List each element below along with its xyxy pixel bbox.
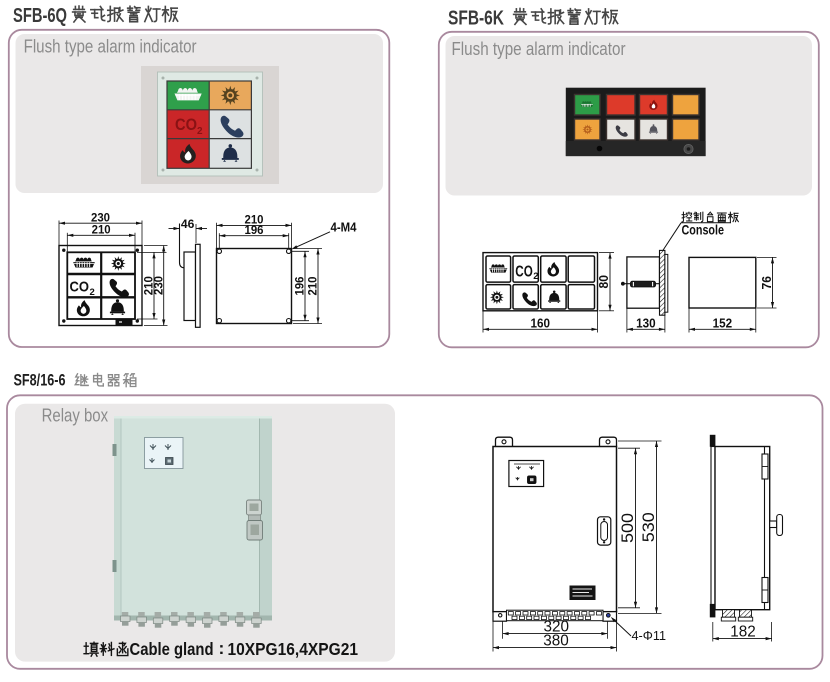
svg-text:Flush type alarm indicator: Flush type alarm indicator [452, 38, 626, 59]
svg-text:2: 2 [197, 126, 203, 137]
svg-text:SFB-6K: SFB-6K [448, 8, 504, 30]
svg-text:4-Φ11: 4-Φ11 [632, 628, 667, 643]
svg-text:182: 182 [730, 623, 756, 640]
svg-text:10XPG16,4XPG21: 10XPG16,4XPG21 [228, 639, 359, 659]
svg-text:196: 196 [293, 276, 307, 295]
svg-text:SF8/16-6: SF8/16-6 [14, 371, 66, 390]
svg-text:196: 196 [245, 223, 264, 237]
svg-text:152: 152 [713, 317, 733, 331]
svg-text:80: 80 [597, 275, 611, 289]
svg-text:230: 230 [151, 276, 165, 295]
svg-text:Console: Console [682, 222, 725, 238]
svg-text:210: 210 [92, 223, 111, 237]
svg-text:2: 2 [533, 271, 538, 282]
svg-text:130: 130 [636, 317, 656, 331]
svg-text:530: 530 [640, 512, 658, 542]
svg-text:76: 76 [760, 276, 774, 290]
svg-text:2: 2 [90, 287, 95, 298]
svg-text:4-M4: 4-M4 [331, 221, 357, 235]
svg-text:CO: CO [515, 264, 533, 281]
svg-text:210: 210 [306, 276, 320, 295]
svg-text:46: 46 [181, 217, 195, 231]
svg-text:CO: CO [70, 279, 90, 296]
svg-text:Relay box: Relay box [42, 405, 109, 426]
svg-text::: : [219, 638, 225, 658]
svg-text:CO: CO [175, 115, 197, 134]
svg-text:380: 380 [543, 632, 569, 649]
svg-text:SFB-6Q: SFB-6Q [13, 5, 67, 27]
svg-text:Cable gland: Cable gland [130, 639, 214, 659]
svg-text:160: 160 [531, 317, 551, 331]
svg-text:500: 500 [619, 513, 637, 543]
svg-text:Flush type alarm indicator: Flush type alarm indicator [24, 36, 197, 57]
